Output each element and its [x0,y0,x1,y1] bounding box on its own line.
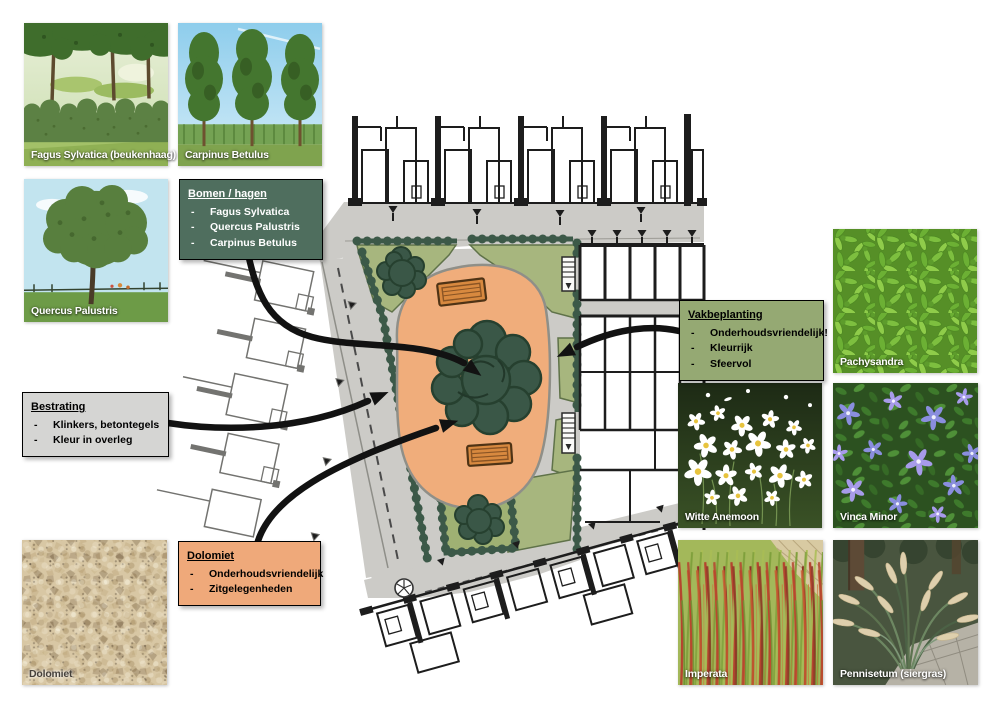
callout-vakbeplanting-list: Onderhoudsvriendelijk! Kleurrijk Sfeervo… [688,326,815,373]
callout-item: Quercus Palustris [188,220,314,236]
photo-fagus: Fagus Sylvatica (beukenhaag) [24,23,168,166]
callout-bomen-hagen: Bomen / hagen Fagus Sylvatica Quercus Pa… [179,179,323,260]
bench-bottom [467,443,512,466]
callout-vakbeplanting-title: Vakbeplanting [688,307,815,324]
arrow-bestrating [168,401,368,428]
bench-top [437,278,486,306]
callout-item: Fagus Sylvatica [188,205,314,221]
callout-bestrating: Bestrating Klinkers, betontegels Kleur i… [22,392,169,457]
photo-label-quercus: Quercus Palustris [31,305,117,317]
callout-item: Kleurrijk [688,341,815,357]
photo-pachysandra: Pachysandra [833,229,977,373]
pachysandra-illustration [833,229,977,373]
anemone-illustration [678,383,822,528]
carpinus-trees-illustration [178,23,322,166]
imperata-grass-illustration [678,540,823,685]
photo-carpinus: Carpinus Betulus [178,23,322,166]
callout-dolomiet-list: Onderhoudsvriendelijk Zitgelegenheden [187,567,312,599]
round-tree-symbol [395,579,413,597]
photo-label-pennisetum: Pennisetum (siergras) [840,668,946,680]
callout-item: Onderhoudsvriendelijk! [688,326,815,342]
photo-label-dolomiet: Dolomiet [29,668,72,680]
quercus-tree-illustration [24,179,168,322]
stairs-bottom [562,413,575,453]
callout-item: Onderhoudsvriendelijk [187,567,312,583]
callout-item: Kleur in overleg [31,433,160,449]
arrow-vakbeplanting [577,328,679,347]
photo-vinca-minor: Vinca Minor [833,383,978,528]
photo-label-fagus: Fagus Sylvatica (beukenhaag) [31,149,176,161]
photo-label-pachysandra: Pachysandra [840,356,903,368]
photo-label-carpinus: Carpinus Betulus [185,149,269,161]
photo-imperata: Imperata [678,540,823,685]
vinca-illustration [833,383,978,528]
callout-vakbeplanting: Vakbeplanting Onderhoudsvriendelijk! Kle… [679,300,824,381]
pennisetum-grass-illustration [833,540,978,685]
callout-bomen-list: Fagus Sylvatica Quercus Palustris Carpin… [188,205,314,252]
photo-quercus: Quercus Palustris [24,179,168,322]
photo-witte-anemoon: Witte Anemoon [678,383,822,528]
photo-dolomiet: Dolomiet [22,540,167,685]
stairs-top [562,257,575,291]
photo-pennisetum: Pennisetum (siergras) [833,540,978,685]
callout-dolomiet-title: Dolomiet [187,548,312,565]
callout-dolomiet: Dolomiet Onderhoudsvriendelijk Zitgelege… [178,541,321,606]
callout-bestrating-title: Bestrating [31,399,160,416]
dolomiet-gravel-illustration [22,540,167,685]
callout-item: Carpinus Betulus [188,236,314,252]
callout-item: Sfeervol [688,357,815,373]
photo-label-imperata: Imperata [685,668,727,680]
callout-item: Klinkers, betontegels [31,418,160,434]
callout-item: Zitgelegenheden [187,582,312,598]
callout-bomen-title: Bomen / hagen [188,186,314,203]
callout-bestrating-list: Klinkers, betontegels Kleur in overleg [31,418,160,450]
photo-label-witte-anemoon: Witte Anemoon [685,511,759,523]
design-board: Fagus Sylvatica (beukenhaag) [0,0,1000,707]
photo-label-vinca-minor: Vinca Minor [840,511,897,523]
fagus-hedge-illustration [24,23,168,166]
